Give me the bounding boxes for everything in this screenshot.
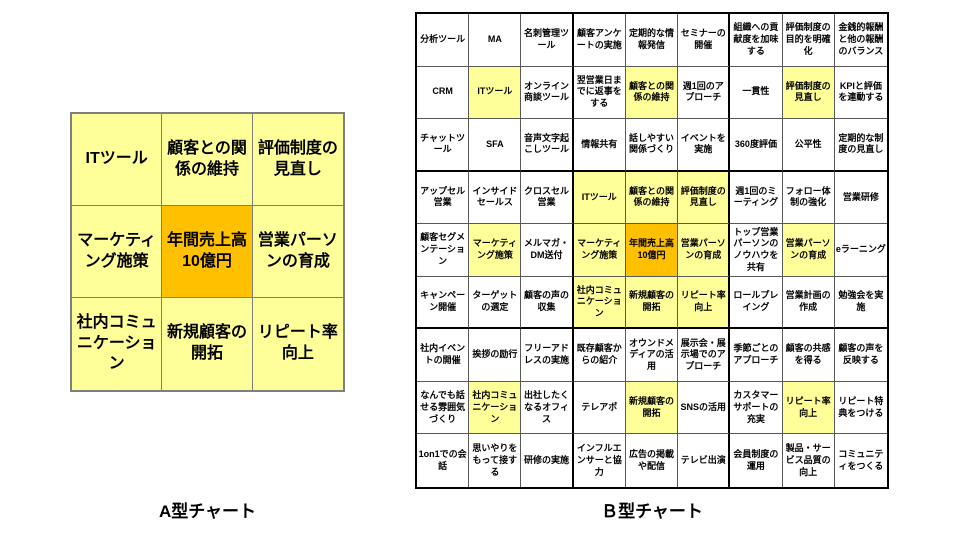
b-cell-r4-c8: フォロー体制の強化 — [783, 172, 835, 225]
b-cell-r5-c3: メルマガ・DM送付 — [521, 224, 573, 277]
b-cell-r5-c8: 営業パーソンの育成 — [783, 224, 835, 277]
b-cell-r3-c6: イベントを実施 — [678, 119, 730, 172]
b-cell-r2-c7: 一貫性 — [730, 67, 782, 120]
b-cell-r5-c6: 営業パーソンの育成 — [678, 224, 730, 277]
b-chart-grid: 分析ツールMA名刺管理ツール顧客アンケートの実施定期的な情報発信セミナーの開催組… — [415, 12, 889, 489]
b-cell-r3-c5: 話しやすい関係づくり — [626, 119, 678, 172]
b-cell-r3-c1: チャットツール — [417, 119, 469, 172]
b-cell-r2-c6: 週1回のアプローチ — [678, 67, 730, 120]
b-cell-r1-c4: 顧客アンケートの実施 — [574, 14, 626, 67]
a-chart-grid: ITツール顧客との関係の維持評価制度の見直しマーケティング施策年間売上高10億円… — [70, 112, 345, 392]
b-cell-r9-c8: 製品・サービス品質の向上 — [783, 434, 835, 487]
b-cell-r1-c1: 分析ツール — [417, 14, 469, 67]
b-cell-r9-c4: インフルエンサーと協力 — [574, 434, 626, 487]
b-cell-r9-c2: 思いやりをもって接する — [469, 434, 521, 487]
b-cell-r9-c1: 1on1での会話 — [417, 434, 469, 487]
b-cell-r5-c7: トップ営業パーソンのノウハウを共有 — [730, 224, 782, 277]
b-cell-r9-c3: 研修の実施 — [521, 434, 573, 487]
b-cell-r6-c8: 営業計画の作成 — [783, 277, 835, 330]
b-cell-r8-c1: なんでも話せる雰囲気づくり — [417, 382, 469, 435]
a-cell-r3-c3: リピート率向上 — [253, 298, 343, 390]
b-cell-r9-c6: テレビ出演 — [678, 434, 730, 487]
b-cell-r1-c9: 金銭的報酬と他の報酬のバランス — [835, 14, 887, 67]
b-cell-r6-c2: ターゲットの選定 — [469, 277, 521, 330]
b-cell-r2-c9: KPIと評価を連動する — [835, 67, 887, 120]
b-cell-r6-c1: キャンペーン開催 — [417, 277, 469, 330]
a-chart-caption: А型チャート — [70, 497, 345, 522]
b-cell-r8-c8: リピート率向上 — [783, 382, 835, 435]
b-cell-r1-c6: セミナーの開催 — [678, 14, 730, 67]
b-cell-r5-c9: eラーニング — [835, 224, 887, 277]
b-cell-r6-c9: 勉強会を実施 — [835, 277, 887, 330]
b-cell-r8-c9: リピート特典をつける — [835, 382, 887, 435]
b-cell-r3-c2: SFA — [469, 119, 521, 172]
b-cell-r7-c8: 顧客の共感を得る — [783, 329, 835, 382]
a-cell-r1-c2: 顧客との関係の維持 — [162, 114, 252, 206]
b-cell-r3-c3: 音声文字起こしツール — [521, 119, 573, 172]
b-cell-r2-c3: オンライン商談ツール — [521, 67, 573, 120]
b-cell-r6-c3: 顧客の声の収集 — [521, 277, 573, 330]
b-cell-r7-c1: 社内イベントの開催 — [417, 329, 469, 382]
b-cell-r8-c2: 社内コミュニケーション — [469, 382, 521, 435]
a-cell-r3-c1: 社内コミュニケーション — [72, 298, 162, 390]
b-cell-r7-c2: 挨拶の励行 — [469, 329, 521, 382]
b-cell-r1-c3: 名刺管理ツール — [521, 14, 573, 67]
b-cell-r8-c5: 新規顧客の開拓 — [626, 382, 678, 435]
b-cell-r4-c6: 評価制度の見直し — [678, 172, 730, 225]
b-cell-r3-c9: 定期的な制度の見直し — [835, 119, 887, 172]
b-cell-r2-c1: CRM — [417, 67, 469, 120]
b-cell-r9-c9: コミュニティをつくる — [835, 434, 887, 487]
b-cell-r8-c7: カスタマーサポートの充実 — [730, 382, 782, 435]
b-cell-r1-c2: MA — [469, 14, 521, 67]
b-cell-r8-c3: 出社したくなるオフィス — [521, 382, 573, 435]
b-cell-r7-c7: 季節ごとのアプローチ — [730, 329, 782, 382]
b-cell-r6-c5: 新規顧客の開拓 — [626, 277, 678, 330]
b-cell-r8-c4: テレアポ — [574, 382, 626, 435]
b-cell-r6-c4: 社内コミュニケーション — [574, 277, 626, 330]
b-cell-r7-c9: 顧客の声を反映する — [835, 329, 887, 382]
b-cell-r6-c7: ロールプレイング — [730, 277, 782, 330]
b-cell-r9-c7: 会員制度の運用 — [730, 434, 782, 487]
b-cell-r4-c4: ITツール — [574, 172, 626, 225]
b-cell-r1-c5: 定期的な情報発信 — [626, 14, 678, 67]
b-cell-r5-c2: マーケティング施策 — [469, 224, 521, 277]
b-cell-r4-c3: クロスセル営業 — [521, 172, 573, 225]
b-cell-r3-c4: 情報共有 — [574, 119, 626, 172]
b-cell-r4-c2: インサイドセールス — [469, 172, 521, 225]
a-cell-r2-c1: マーケティング施策 — [72, 206, 162, 298]
b-cell-r1-c8: 評価制度の目的を明確化 — [783, 14, 835, 67]
b-cell-r5-c5: 年間売上高10億円 — [626, 224, 678, 277]
b-cell-r8-c6: SNSの活用 — [678, 382, 730, 435]
a-cell-r2-c3: 営業パーソンの育成 — [253, 206, 343, 298]
b-cell-r5-c1: 顧客セグメンテーション — [417, 224, 469, 277]
b-cell-r5-c4: マーケティング施策 — [574, 224, 626, 277]
a-cell-r2-c2: 年間売上高10億円 — [162, 206, 252, 298]
b-cell-r3-c7: 360度評価 — [730, 119, 782, 172]
b-cell-r7-c6: 展示会・展示場でのアプローチ — [678, 329, 730, 382]
b-cell-r3-c8: 公平性 — [783, 119, 835, 172]
b-cell-r2-c4: 翌営業日までに返事をする — [574, 67, 626, 120]
b-cell-r2-c5: 顧客との関係の維持 — [626, 67, 678, 120]
b-cell-r7-c5: オウンドメディアの活用 — [626, 329, 678, 382]
b-cell-r4-c1: アップセル営業 — [417, 172, 469, 225]
b-cell-r1-c7: 組織への貢献度を加味する — [730, 14, 782, 67]
b-cell-r6-c6: リピート率向上 — [678, 277, 730, 330]
a-cell-r1-c1: ITツール — [72, 114, 162, 206]
b-cell-r7-c3: フリーアドレスの実施 — [521, 329, 573, 382]
b-cell-r4-c5: 顧客との関係の維持 — [626, 172, 678, 225]
b-chart-caption: Ｂ型チャート — [415, 497, 889, 522]
b-cell-r2-c2: ITツール — [469, 67, 521, 120]
a-cell-r1-c3: 評価制度の見直し — [253, 114, 343, 206]
b-cell-r4-c7: 週1回のミーティング — [730, 172, 782, 225]
b-cell-r7-c4: 既存顧客からの紹介 — [574, 329, 626, 382]
a-cell-r3-c2: 新規顧客の開拓 — [162, 298, 252, 390]
b-cell-r2-c8: 評価制度の見直し — [783, 67, 835, 120]
b-cell-r4-c9: 営業研修 — [835, 172, 887, 225]
b-cell-r9-c5: 広告の掲載や配信 — [626, 434, 678, 487]
